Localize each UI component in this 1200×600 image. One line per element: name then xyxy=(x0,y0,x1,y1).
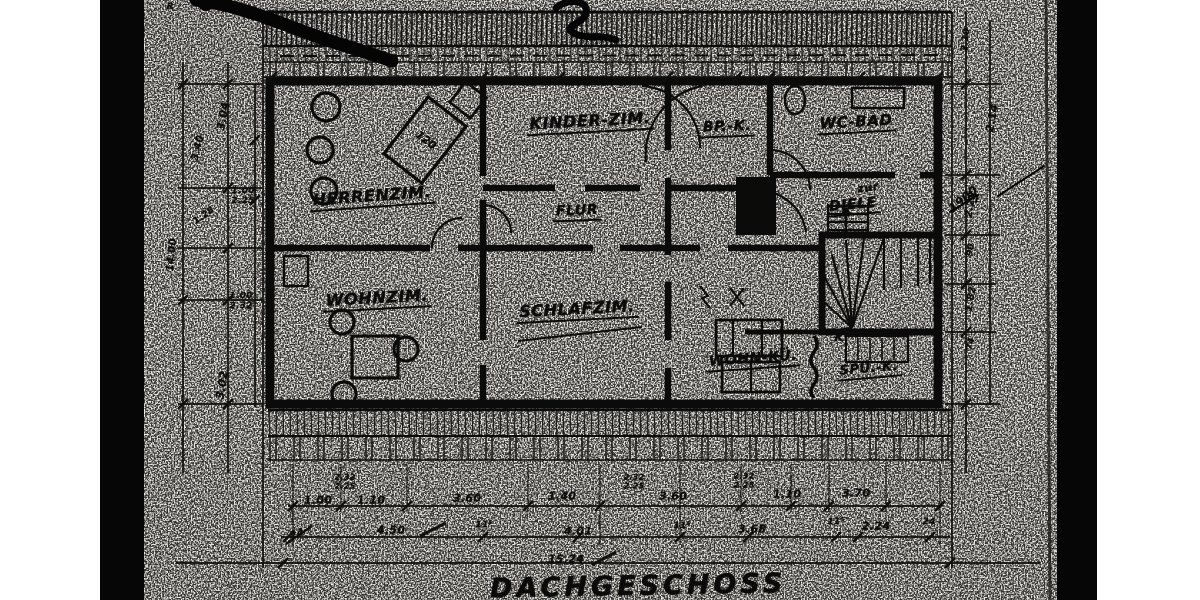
chimney-block xyxy=(736,177,776,235)
roof-hatch-band-top xyxy=(263,12,952,76)
roof-hatch-band-bottom xyxy=(268,410,952,460)
floorplan-drawing xyxy=(0,0,1200,600)
scanned-floorplan-page: HERRENZIM. KINDER-ZIM. BP.-K. WC-BAD zur… xyxy=(0,0,1200,600)
